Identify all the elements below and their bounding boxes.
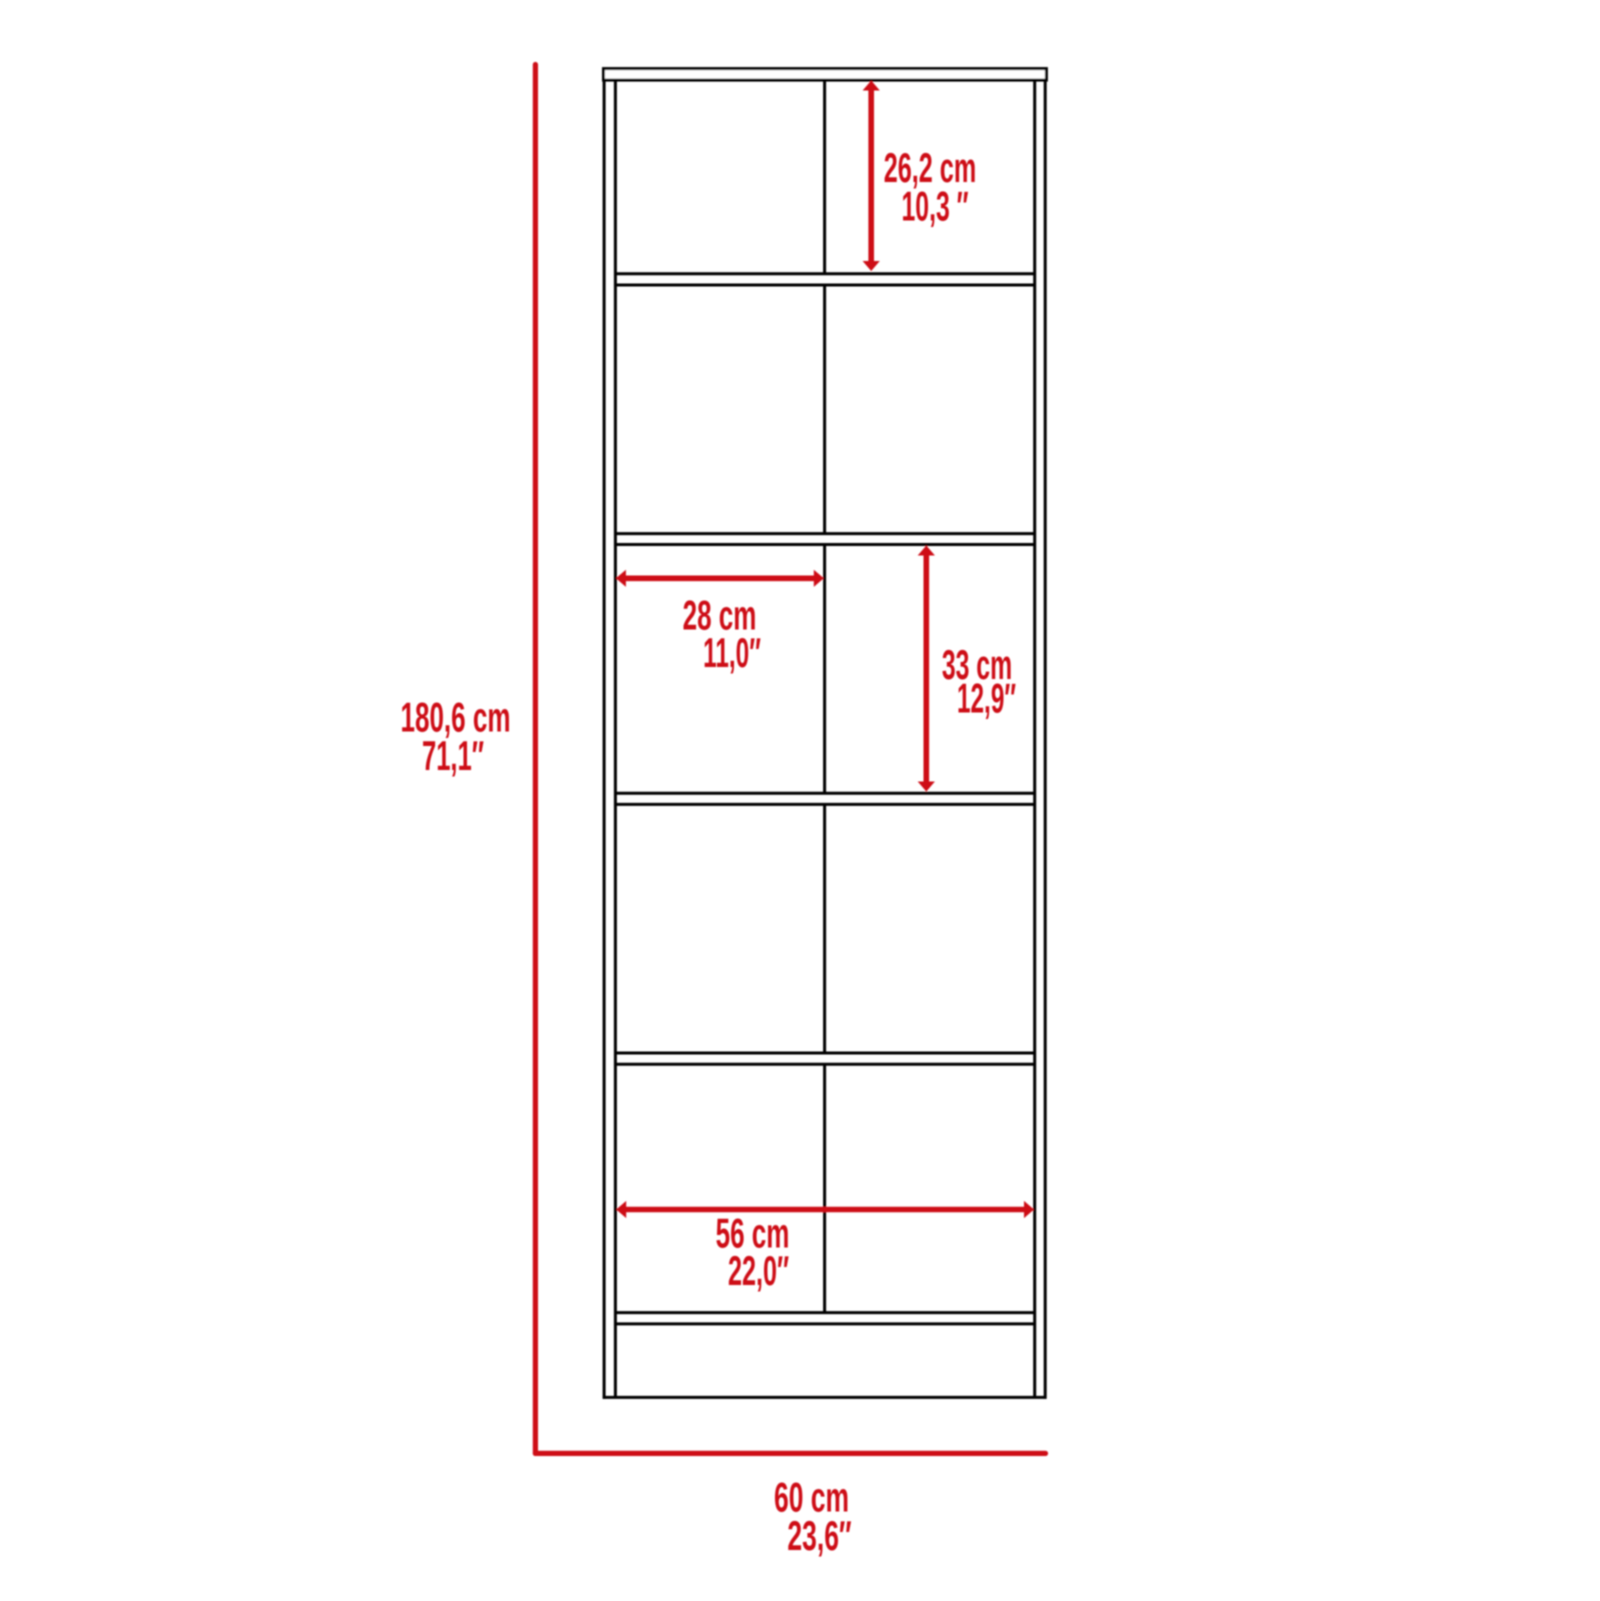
svg-text:22,0″: 22,0″ <box>728 1249 789 1295</box>
svg-text:23,6″: 23,6″ <box>787 1513 851 1560</box>
svg-text:71,1″: 71,1″ <box>422 734 484 780</box>
svg-text:12,9″: 12,9″ <box>957 676 1016 722</box>
svg-text:11,0″: 11,0″ <box>703 630 761 676</box>
svg-text:10,3 ″: 10,3 ″ <box>902 184 969 230</box>
